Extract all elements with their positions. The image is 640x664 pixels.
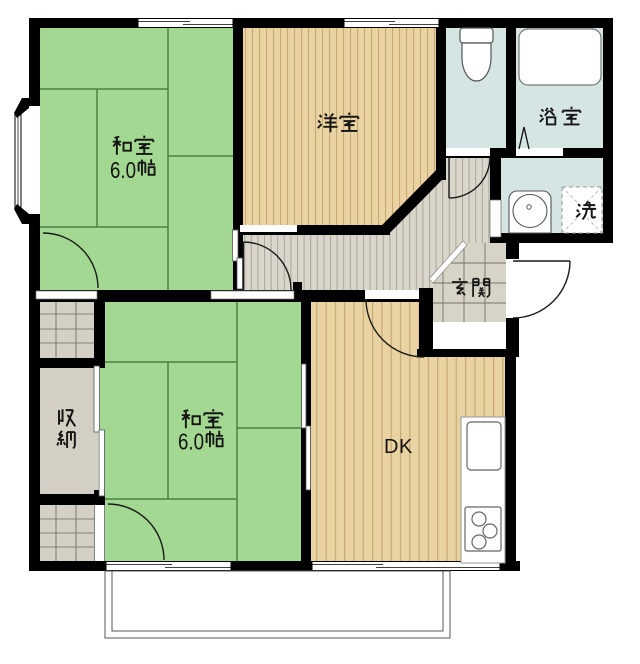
svg-text:6.0: 6.0 <box>110 157 136 183</box>
svg-text:DK: DK <box>384 436 413 458</box>
svg-text:6.0: 6.0 <box>178 429 204 455</box>
